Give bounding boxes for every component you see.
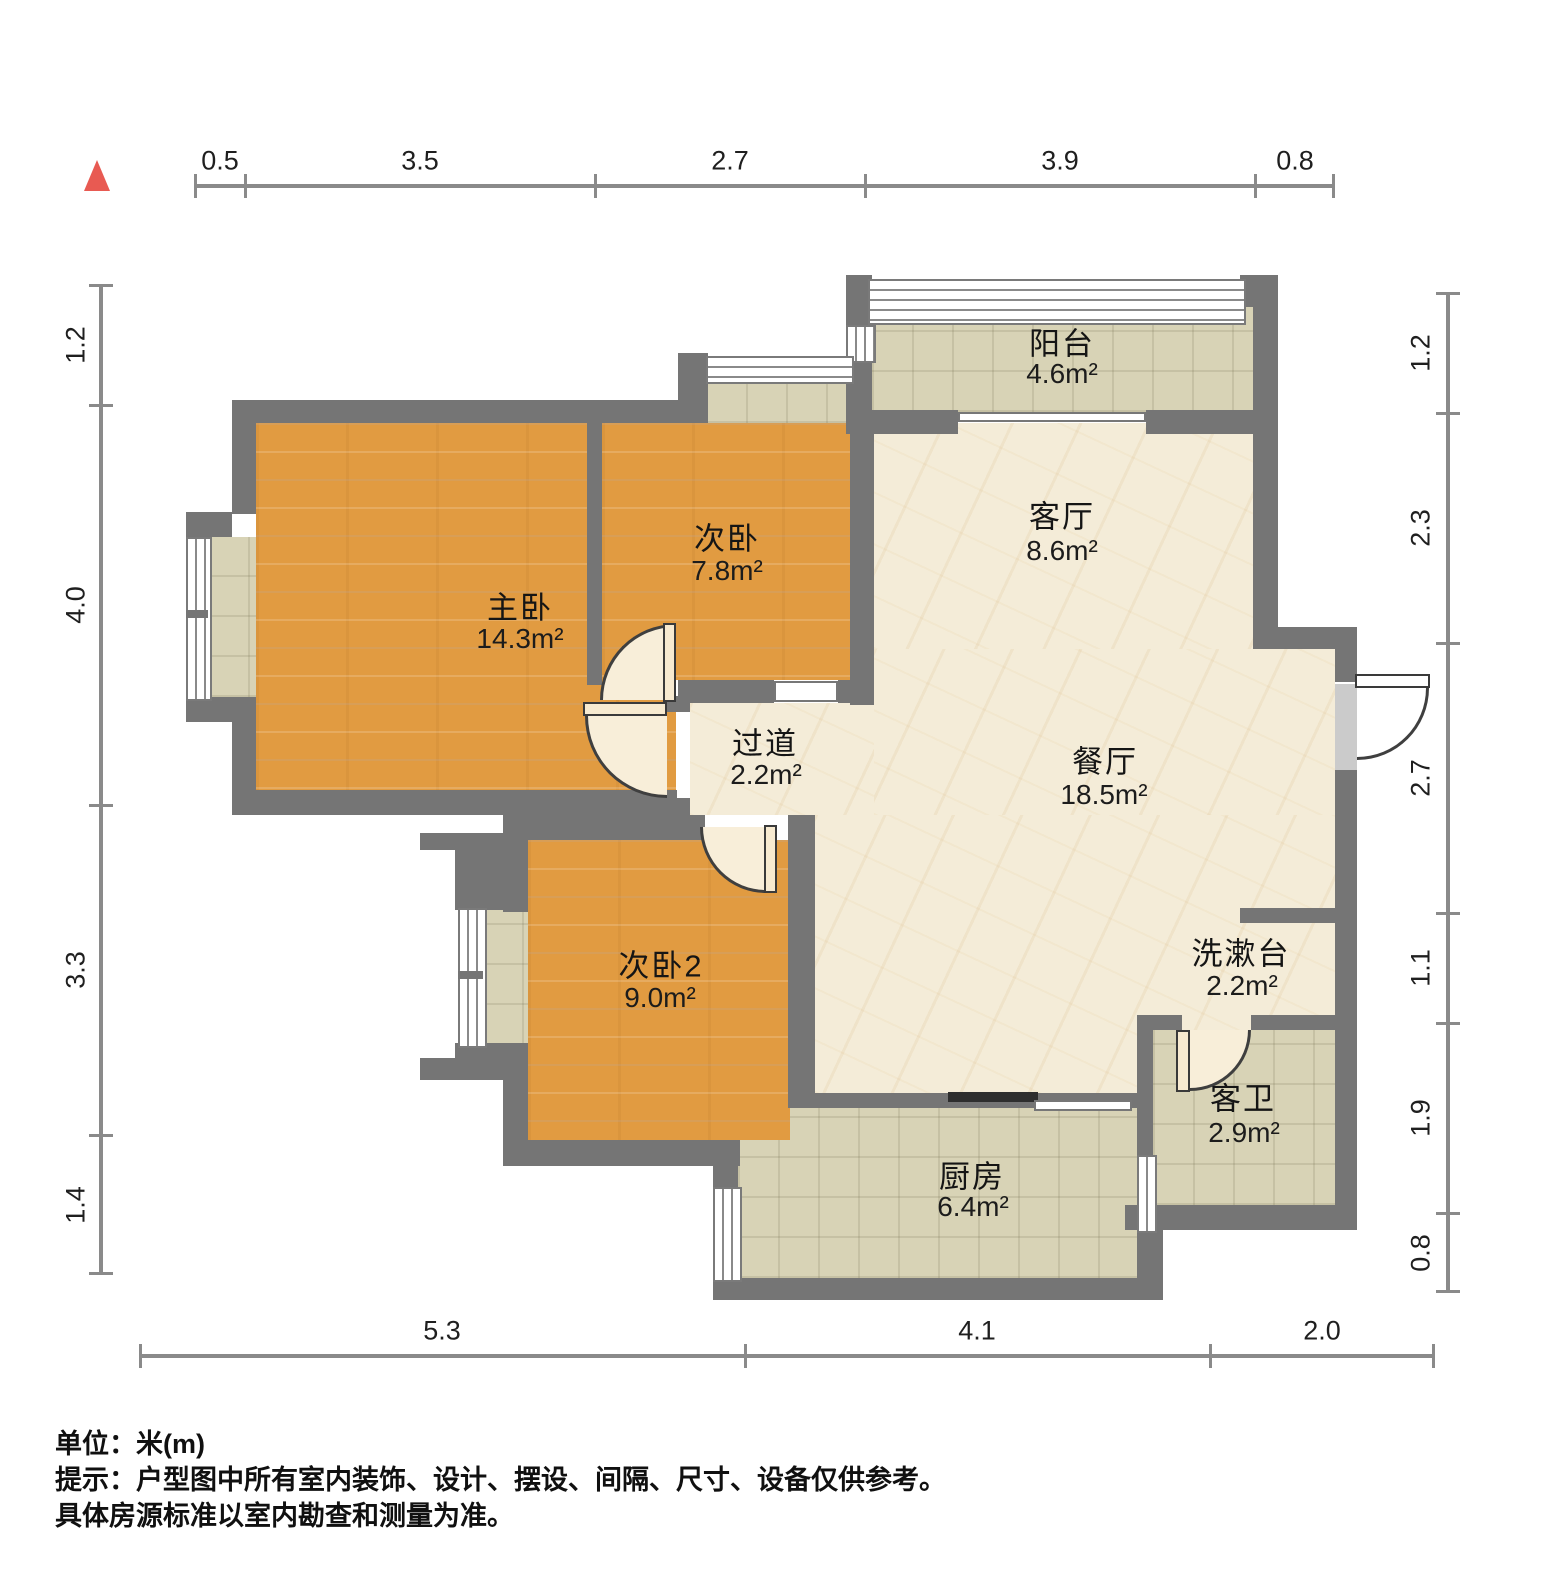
tick [1254, 174, 1257, 198]
tick [244, 174, 247, 198]
bedroom3-bay-sill [482, 908, 528, 1045]
tick [1436, 912, 1460, 915]
kitchen-sliding-door [1034, 1100, 1132, 1111]
wall [503, 1140, 740, 1166]
dim-top-2: 3.5 [401, 146, 439, 177]
tick [1209, 1344, 1212, 1368]
dim-right-4: 1.1 [1406, 949, 1437, 987]
room-area-master: 14.3m² [476, 623, 563, 655]
bathroom-door [1176, 1030, 1190, 1092]
master-bay-window [186, 537, 212, 701]
dim-left-3: 3.3 [61, 951, 92, 989]
tick [89, 404, 113, 407]
room-area-washstand: 2.2m² [1206, 970, 1278, 1002]
room-label-dining: 餐厅 [1072, 737, 1138, 782]
room-label-washstand: 洗漱台 [1192, 929, 1291, 974]
tick [1436, 1212, 1460, 1215]
wall [1335, 649, 1357, 682]
dimension-line-right [1446, 293, 1450, 1293]
window-divider [186, 610, 208, 618]
wall [420, 833, 505, 850]
north-compass-icon [84, 160, 110, 191]
window-divider [458, 971, 483, 979]
bedroom3-door [764, 825, 777, 893]
entry-door-shade [1335, 684, 1357, 770]
room-label-bedroom2: 次卧 [694, 514, 760, 559]
wall [1335, 770, 1357, 908]
master-bay-sill [208, 537, 256, 697]
wall [455, 850, 503, 910]
entry-door-arc [1357, 688, 1429, 760]
dim-top-5: 0.8 [1276, 146, 1314, 177]
wall [788, 815, 815, 1095]
footer-note-1: 提示：户型图中所有室内装饰、设计、摆设、间隔、尺寸、设备仅供参考。 [55, 1458, 946, 1497]
tick [1436, 1290, 1460, 1293]
room-label-hallway: 过道 [732, 719, 798, 764]
dimension-line-top [195, 184, 1335, 188]
bedroom2-window [706, 356, 854, 384]
dim-right-5: 1.9 [1406, 1099, 1437, 1137]
room-label-master: 主卧 [487, 583, 553, 628]
master-door [583, 702, 667, 716]
tick [89, 1272, 113, 1275]
wall [232, 400, 687, 423]
tick [89, 1134, 113, 1137]
tick [1332, 174, 1335, 198]
room-area-bedroom3: 9.0m² [624, 982, 696, 1014]
wall [186, 512, 232, 537]
hallway-opening [774, 681, 838, 702]
room-label-living: 客厅 [1029, 492, 1095, 537]
dimension-line-left [99, 285, 103, 1275]
wall [678, 680, 766, 703]
wall [850, 412, 874, 705]
floor-plan: 阳台 4.6m² 客厅 8.6m² 主卧 14.3m² 次卧 7.8m² 过道 … [0, 0, 1547, 1580]
tick [139, 1344, 142, 1368]
bathroom-window [1137, 1155, 1157, 1233]
wall [678, 353, 708, 423]
kitchen-sliding-door [948, 1092, 1038, 1102]
bedroom2-bay-sill [706, 380, 850, 423]
wall [766, 680, 774, 703]
room-area-bathroom: 2.9m² [1208, 1117, 1280, 1149]
wall [1240, 908, 1340, 923]
dim-right-3: 2.7 [1406, 759, 1437, 797]
dim-left-2: 4.0 [61, 586, 92, 624]
room-area-bedroom2: 7.8m² [691, 555, 763, 587]
dim-left-4: 1.4 [61, 1186, 92, 1224]
wall [1335, 908, 1357, 1208]
wall [1137, 1015, 1153, 1155]
dim-left-1: 1.2 [61, 326, 92, 364]
entry-door [1355, 674, 1430, 688]
tick [1436, 1022, 1460, 1025]
room-area-kitchen: 6.4m² [937, 1191, 1009, 1223]
wall [232, 790, 677, 815]
wall [587, 423, 602, 685]
footer-unit-note: 单位：米(m) [55, 1422, 205, 1461]
wall [838, 680, 850, 703]
wall [232, 400, 256, 514]
dim-bottom-3: 2.0 [1303, 1316, 1341, 1347]
wall [420, 1058, 505, 1080]
dim-right-6: 0.8 [1406, 1234, 1437, 1272]
wall [1253, 627, 1357, 649]
room-label-bathroom: 客卫 [1210, 1074, 1276, 1119]
wall [1253, 275, 1278, 649]
tick [1436, 642, 1460, 645]
tick [89, 284, 113, 287]
room-area-hallway: 2.2m² [730, 759, 802, 791]
dimension-line-bottom [140, 1354, 1435, 1358]
dim-bottom-1: 5.3 [423, 1316, 461, 1347]
tick [1436, 292, 1460, 295]
wall [503, 815, 705, 840]
wall [1137, 1230, 1163, 1278]
tick [1436, 412, 1460, 415]
tick [594, 174, 597, 198]
wall [713, 1278, 1163, 1300]
balcony-opening [958, 412, 1146, 422]
tick [744, 1344, 747, 1368]
dim-right-1: 1.2 [1406, 334, 1437, 372]
dim-top-3: 2.7 [711, 146, 749, 177]
dim-bottom-2: 4.1 [958, 1316, 996, 1347]
wall [503, 1043, 528, 1142]
bedroom2-door [663, 623, 676, 702]
dim-top-1: 0.5 [201, 146, 239, 177]
room-label-balcony: 阳台 [1029, 319, 1095, 364]
room-area-living: 8.6m² [1026, 535, 1098, 567]
room-label-kitchen: 厨房 [939, 1152, 1005, 1197]
kitchen-window [713, 1187, 742, 1282]
wall [1125, 1205, 1357, 1230]
tick [89, 804, 113, 807]
dim-top-4: 3.9 [1041, 146, 1079, 177]
wall [1146, 410, 1253, 434]
wall [665, 798, 690, 815]
wall [503, 817, 528, 912]
tick [1432, 1344, 1435, 1368]
tick [194, 174, 197, 198]
dim-right-2: 2.3 [1406, 509, 1437, 547]
footer-note-2: 具体房源标准以室内勘查和测量为准。 [55, 1494, 514, 1533]
tick [864, 174, 867, 198]
room-area-dining: 18.5m² [1060, 779, 1147, 811]
room-label-bedroom3: 次卧2 [618, 941, 703, 986]
room-area-balcony: 4.6m² [1026, 358, 1098, 390]
wall [1251, 1015, 1337, 1030]
